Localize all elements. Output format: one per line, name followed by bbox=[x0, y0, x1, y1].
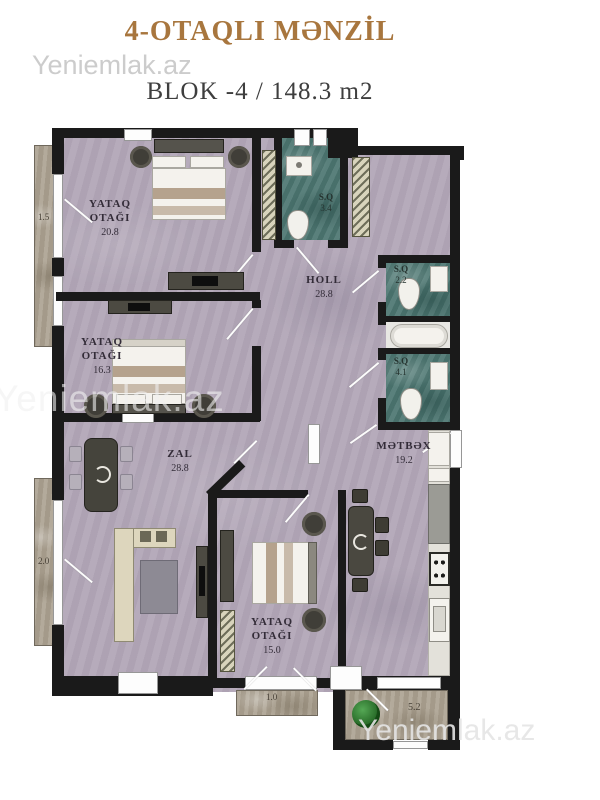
room-label-zal: ZAL 28.8 bbox=[148, 448, 212, 474]
window bbox=[294, 129, 310, 146]
room-area: 28.8 bbox=[292, 289, 356, 300]
chair bbox=[352, 578, 368, 592]
window bbox=[53, 174, 63, 258]
door-leaf-panel bbox=[308, 424, 320, 464]
room-label-wc-top: S.Q 3.4 bbox=[312, 192, 340, 213]
wall bbox=[252, 300, 261, 308]
room-name: YATAQ OTAĞI bbox=[70, 336, 134, 364]
wardrobe bbox=[352, 157, 370, 237]
window bbox=[377, 677, 441, 689]
window bbox=[118, 672, 158, 694]
wall bbox=[338, 490, 346, 685]
wall bbox=[252, 346, 261, 421]
chair bbox=[375, 517, 389, 533]
sink bbox=[430, 266, 448, 292]
fridge bbox=[428, 484, 450, 544]
wall bbox=[328, 240, 348, 248]
window bbox=[313, 129, 327, 146]
wardrobe bbox=[220, 610, 235, 672]
room-name: S.Q bbox=[388, 356, 414, 367]
room-label-wc-small: S.Q 2.2 bbox=[388, 264, 414, 285]
wall bbox=[213, 678, 245, 688]
bathtub bbox=[390, 324, 448, 348]
room-area: 19.2 bbox=[364, 455, 444, 466]
bed bbox=[252, 542, 314, 604]
chair bbox=[375, 540, 389, 556]
floor-plan-image: 4-OTAQLI MƏNZİL Yeniemlak.az BLOK -4 / 1… bbox=[0, 0, 600, 800]
page-subtitle: BLOK -4 / 148.3 m2 bbox=[60, 78, 460, 106]
wall bbox=[450, 466, 460, 692]
room-label-kitchen: MƏTBƏX 19.2 bbox=[364, 440, 444, 466]
wall bbox=[386, 316, 452, 322]
chair bbox=[69, 446, 82, 462]
room-area: 28.8 bbox=[148, 463, 212, 474]
watermark-top: Yeniemlak.az bbox=[32, 50, 192, 81]
table-decor bbox=[94, 466, 111, 483]
room-area: 20.8 bbox=[78, 227, 142, 238]
room-name: S.Q bbox=[388, 264, 414, 275]
bed-blanket-stripe bbox=[284, 543, 293, 603]
window bbox=[124, 129, 152, 141]
balcony-area-left-bottom: 2.0 bbox=[38, 556, 49, 566]
wall bbox=[340, 137, 348, 248]
room-label-bedroom3: YATAQ OTAĞI 15.0 bbox=[238, 616, 306, 656]
pillow bbox=[152, 156, 186, 168]
sink-basin bbox=[433, 606, 446, 632]
sofa-cushion bbox=[140, 531, 151, 542]
window bbox=[53, 500, 63, 625]
tv bbox=[128, 303, 150, 311]
watermark-bottom: Yeniemlak.az bbox=[358, 714, 535, 748]
window bbox=[53, 276, 63, 326]
sink bbox=[430, 362, 448, 390]
sofa bbox=[114, 528, 134, 642]
room-label-holl: HOLL 28.8 bbox=[292, 274, 356, 300]
table-decor bbox=[353, 534, 369, 550]
wardrobe bbox=[262, 150, 276, 240]
room-name: ZAL bbox=[148, 448, 212, 462]
chair bbox=[120, 474, 133, 490]
room-name: YATAQ OTAĞI bbox=[78, 198, 142, 226]
room-label-wc-large: S.Q 4.1 bbox=[388, 356, 414, 377]
room-label-bedroom1: YATAQ OTAĞI 20.8 bbox=[78, 198, 142, 238]
wall bbox=[450, 146, 460, 432]
wall bbox=[378, 255, 386, 268]
tv bbox=[192, 276, 218, 286]
rug bbox=[140, 560, 178, 614]
wall bbox=[378, 302, 386, 325]
chair bbox=[352, 489, 368, 503]
pillow bbox=[190, 156, 224, 168]
dresser bbox=[220, 530, 234, 602]
bed-headboard bbox=[154, 139, 224, 153]
stove bbox=[429, 552, 450, 586]
room-label-bedroom2: YATAQ OTAĞI 16.3 bbox=[70, 336, 134, 376]
balcony-door bbox=[330, 666, 362, 690]
sink-drain bbox=[296, 162, 302, 168]
entrance-door bbox=[450, 430, 462, 468]
nightstand-lamp bbox=[130, 146, 152, 168]
nightstand-lamp bbox=[302, 512, 326, 536]
watermark-middle: Yeniemlak.az bbox=[0, 378, 225, 420]
room-area: 15.0 bbox=[238, 645, 306, 656]
chair bbox=[120, 446, 133, 462]
sofa-cushion bbox=[156, 531, 167, 542]
chair bbox=[69, 474, 82, 490]
wall bbox=[208, 490, 308, 498]
room-area: 2.2 bbox=[388, 275, 414, 285]
room-name: YATAQ OTAĞI bbox=[238, 616, 306, 644]
tv bbox=[199, 566, 205, 596]
wall bbox=[378, 255, 452, 263]
balcony-area-bottom-center: 1.0 bbox=[266, 692, 277, 702]
room-name: MƏTBƏX bbox=[364, 440, 444, 454]
room-area: 16.3 bbox=[70, 365, 134, 376]
room-name: S.Q bbox=[312, 192, 340, 203]
balcony-area-left-top: 1.5 bbox=[38, 212, 49, 222]
wall bbox=[208, 497, 217, 685]
page-title: 4-OTAQLI MƏNZİL bbox=[60, 16, 460, 48]
wall bbox=[354, 146, 460, 155]
kitchen-cabinet bbox=[428, 468, 450, 482]
wall bbox=[378, 422, 460, 430]
room-name: HOLL bbox=[292, 274, 356, 288]
bed-blanket-stripe bbox=[153, 188, 225, 199]
room-area: 4.1 bbox=[388, 367, 414, 377]
balcony-area-bottom-right: 5.2 bbox=[408, 702, 421, 713]
wall bbox=[52, 128, 64, 174]
wall bbox=[378, 348, 386, 360]
room-area: 3.4 bbox=[312, 203, 340, 213]
outside-patch bbox=[352, 120, 462, 146]
bed-blanket-stripe bbox=[153, 206, 225, 215]
bed-blanket-stripe bbox=[266, 543, 277, 603]
wall bbox=[386, 348, 452, 354]
nightstand-lamp bbox=[228, 146, 250, 168]
bed-headboard bbox=[308, 542, 317, 604]
wall bbox=[274, 240, 294, 248]
wall bbox=[252, 137, 261, 252]
wall bbox=[52, 258, 64, 276]
